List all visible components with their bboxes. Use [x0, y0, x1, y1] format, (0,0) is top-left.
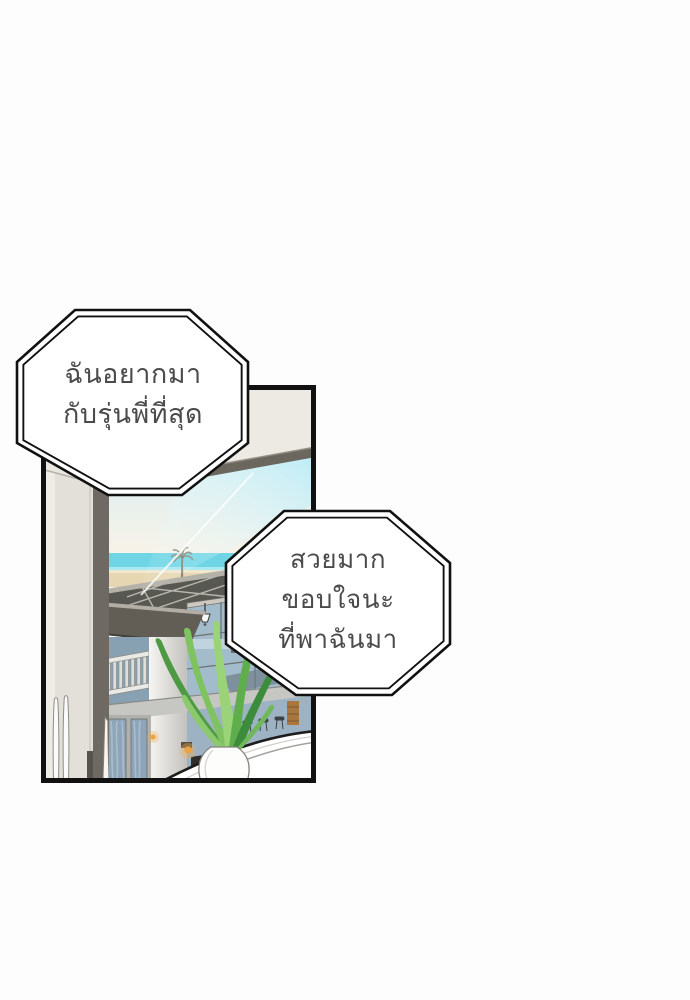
bubble-2-line-2: ขอบใจนะ — [224, 579, 452, 619]
speech-bubble-1: ฉันอยากมา กับรุ่นพี่ที่สุด — [15, 308, 251, 498]
bubble-1-line-1: ฉันอยากมา — [15, 354, 251, 394]
speech-bubble-1-text: ฉันอยากมา กับรุ่นพี่ที่สุด — [15, 354, 251, 434]
bubble-2-line-3: ที่พาฉันมา — [224, 619, 452, 659]
bubble-1-line-2: กับรุ่นพี่ที่สุด — [15, 394, 251, 434]
bubble-2-line-1: สวยมาก — [224, 539, 452, 579]
speech-bubble-2-text: สวยมาก ขอบใจนะ ที่พาฉันมา — [224, 539, 452, 659]
shelf-strip — [287, 701, 299, 725]
comic-page: ฉันอยากมา กับรุ่นพี่ที่สุด สวยมาก ขอบใจน… — [0, 0, 690, 1000]
white-vase — [199, 747, 249, 782]
curtained-windows — [105, 715, 151, 783]
speech-bubble-2: สวยมาก ขอบใจนะ ที่พาฉันมา — [224, 509, 452, 697]
